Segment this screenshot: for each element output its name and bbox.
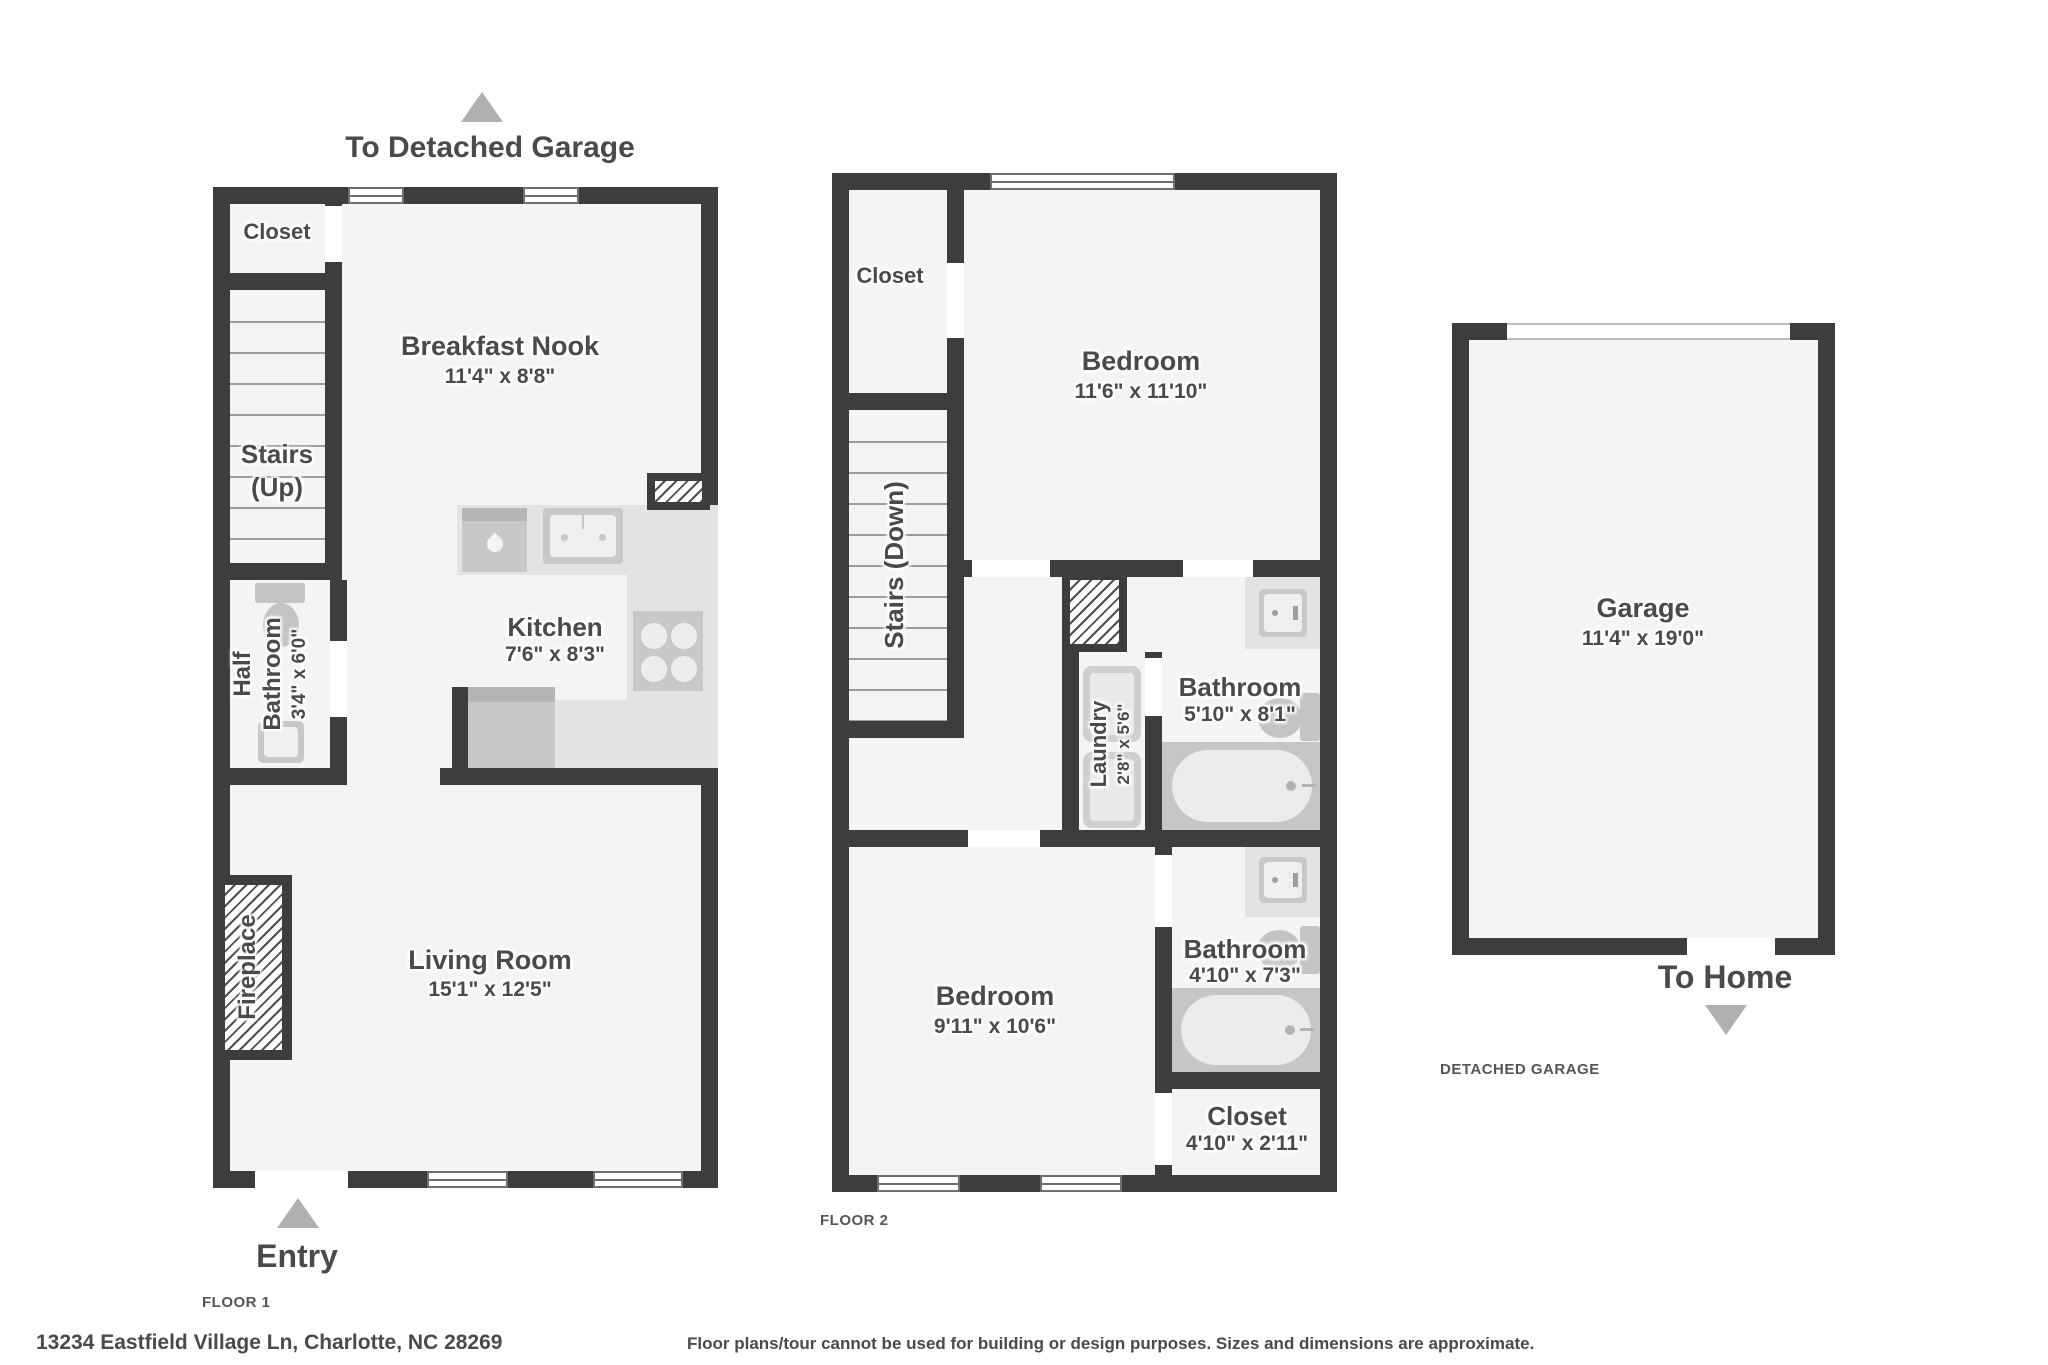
garage-door-opening: [1507, 323, 1790, 340]
burner-icon: [671, 623, 697, 649]
drain-icon: [1286, 781, 1296, 791]
garage-dims: 11'4" x 19'0": [1523, 626, 1763, 652]
wall: [452, 687, 468, 768]
kitchen-label: Kitchen: [475, 611, 635, 644]
closet-label: Closet: [1147, 1100, 1347, 1133]
half-bathroom-name: Half Bathroom: [228, 609, 288, 739]
sink-knob-icon: [561, 534, 568, 541]
entry-label: Entry: [217, 1238, 377, 1275]
entry-arrow-icon: [277, 1198, 319, 1228]
to-detached-garage-label: To Detached Garage: [330, 131, 650, 165]
window: [523, 187, 579, 204]
faucet-icon: [1293, 606, 1298, 620]
sink-knob-icon: [1272, 877, 1278, 883]
wall: [832, 830, 1337, 847]
wall: [213, 187, 718, 204]
fireplace-label: Fireplace: [233, 882, 273, 1052]
bedroom-dims: 11'6" x 11'10": [1021, 379, 1261, 405]
window: [427, 1171, 508, 1188]
wall: [832, 721, 964, 738]
wall: [832, 173, 849, 1192]
water-drop-icon: [484, 533, 507, 556]
wall: [947, 410, 964, 738]
sink-knob-icon: [599, 534, 606, 541]
kitchen-sink-fixture: [543, 508, 623, 564]
bedroom-label: Bedroom: [1021, 345, 1261, 379]
wall: [1452, 323, 1469, 955]
bathroom-label: Bathroom: [1145, 933, 1345, 966]
laundry-label: Laundry 2'8" x 5'6": [1085, 659, 1139, 829]
burner-icon: [641, 656, 667, 682]
door-opening: [330, 641, 347, 717]
door-opening: [1183, 560, 1253, 577]
burner-icon: [671, 656, 697, 682]
wall: [1452, 938, 1835, 955]
garage-label: Garage: [1523, 592, 1763, 626]
stairs-up-name: Stairs: [217, 438, 337, 471]
window: [990, 173, 1175, 190]
floor1-tag: FLOOR 1: [202, 1294, 271, 1311]
stairs-up: [230, 292, 325, 563]
stairs-up-label: Stairs (Up): [217, 438, 337, 503]
faucet-icon: [1302, 784, 1316, 787]
chase-hatch: [1062, 572, 1127, 652]
closet-dims: 4'10" x 2'11": [1147, 1131, 1347, 1157]
door-opening: [1155, 855, 1172, 927]
stairs-up-direction: (Up): [217, 471, 337, 504]
faucet-icon: [582, 515, 584, 529]
to-home-arrow-icon: [1705, 1005, 1747, 1035]
breakfast-nook-dims: 11'4" x 8'8": [390, 364, 610, 390]
disclaimer-text: Floor plans/tour cannot be used for buil…: [687, 1334, 1534, 1354]
wall: [832, 393, 964, 410]
breakfast-nook-label: Breakfast Nook: [390, 330, 610, 364]
living-room-dims: 15'1" x 12'5": [370, 977, 610, 1003]
bedroom-dims: 9'11" x 10'6": [875, 1014, 1115, 1040]
wall: [1155, 1072, 1337, 1089]
detached-garage-tag: DETACHED GARAGE: [1440, 1061, 1600, 1078]
sink-fixture: [1259, 857, 1307, 903]
closet-label: Closet: [217, 218, 337, 246]
floor2-tag: FLOOR 2: [820, 1212, 889, 1229]
wall: [325, 290, 342, 580]
drain-icon: [1285, 1025, 1295, 1035]
refrigerator-fixture: [468, 687, 555, 768]
bathroom-dims: 4'10" x 7'3": [1145, 963, 1345, 989]
laundry-name: Laundry: [1085, 659, 1113, 829]
pantry-hatch: [647, 473, 710, 510]
window: [593, 1171, 683, 1188]
sink-knob-icon: [1272, 610, 1278, 616]
burner-icon: [641, 623, 667, 649]
living-room-label: Living Room: [370, 944, 610, 978]
closet-label: Closet: [830, 262, 950, 290]
bathtub-surround: [1162, 742, 1320, 830]
sink-fixture: [1259, 589, 1307, 637]
door-opening: [1687, 938, 1775, 955]
dishwasher-fixture: [462, 508, 527, 572]
kitchen-dims: 7'6" x 8'3": [475, 642, 635, 668]
to-garage-arrow-icon: [461, 92, 503, 122]
window: [877, 1175, 960, 1192]
dishwasher-panel: [462, 508, 527, 521]
stove-fixture: [633, 611, 703, 691]
window: [348, 187, 404, 204]
half-bathroom-dims: 3'4" x 6'0": [288, 569, 312, 779]
bathroom-dims: 5'10" x 8'1": [1140, 702, 1340, 728]
bathroom-label: Bathroom: [1140, 671, 1340, 704]
stairs-down-label: Stairs (Down): [878, 425, 918, 705]
wall: [1818, 323, 1835, 955]
laundry-dims: 2'8" x 5'6": [1113, 659, 1134, 829]
wall: [213, 273, 342, 290]
to-home-label: To Home: [1625, 959, 1825, 996]
wall: [1062, 652, 1079, 843]
bathtub-surround: [1172, 988, 1320, 1072]
half-bathroom-label: Half Bathroom 3'4" x 6'0": [228, 569, 332, 779]
window: [1040, 1175, 1122, 1192]
bedroom-label: Bedroom: [875, 980, 1115, 1014]
kitchen-counter: [545, 700, 718, 768]
door-opening: [968, 830, 1040, 847]
wall: [440, 768, 718, 785]
door-opening: [972, 560, 1050, 577]
floor-plan-page: { "meta": { "address": "13234 Eastfield …: [0, 0, 2048, 1365]
entry-door-opening: [255, 1171, 348, 1188]
refrigerator-top: [468, 687, 555, 702]
faucet-icon: [1300, 1028, 1314, 1031]
faucet-icon: [1293, 873, 1298, 887]
property-address: 13234 Eastfield Village Ln, Charlotte, N…: [36, 1331, 502, 1355]
